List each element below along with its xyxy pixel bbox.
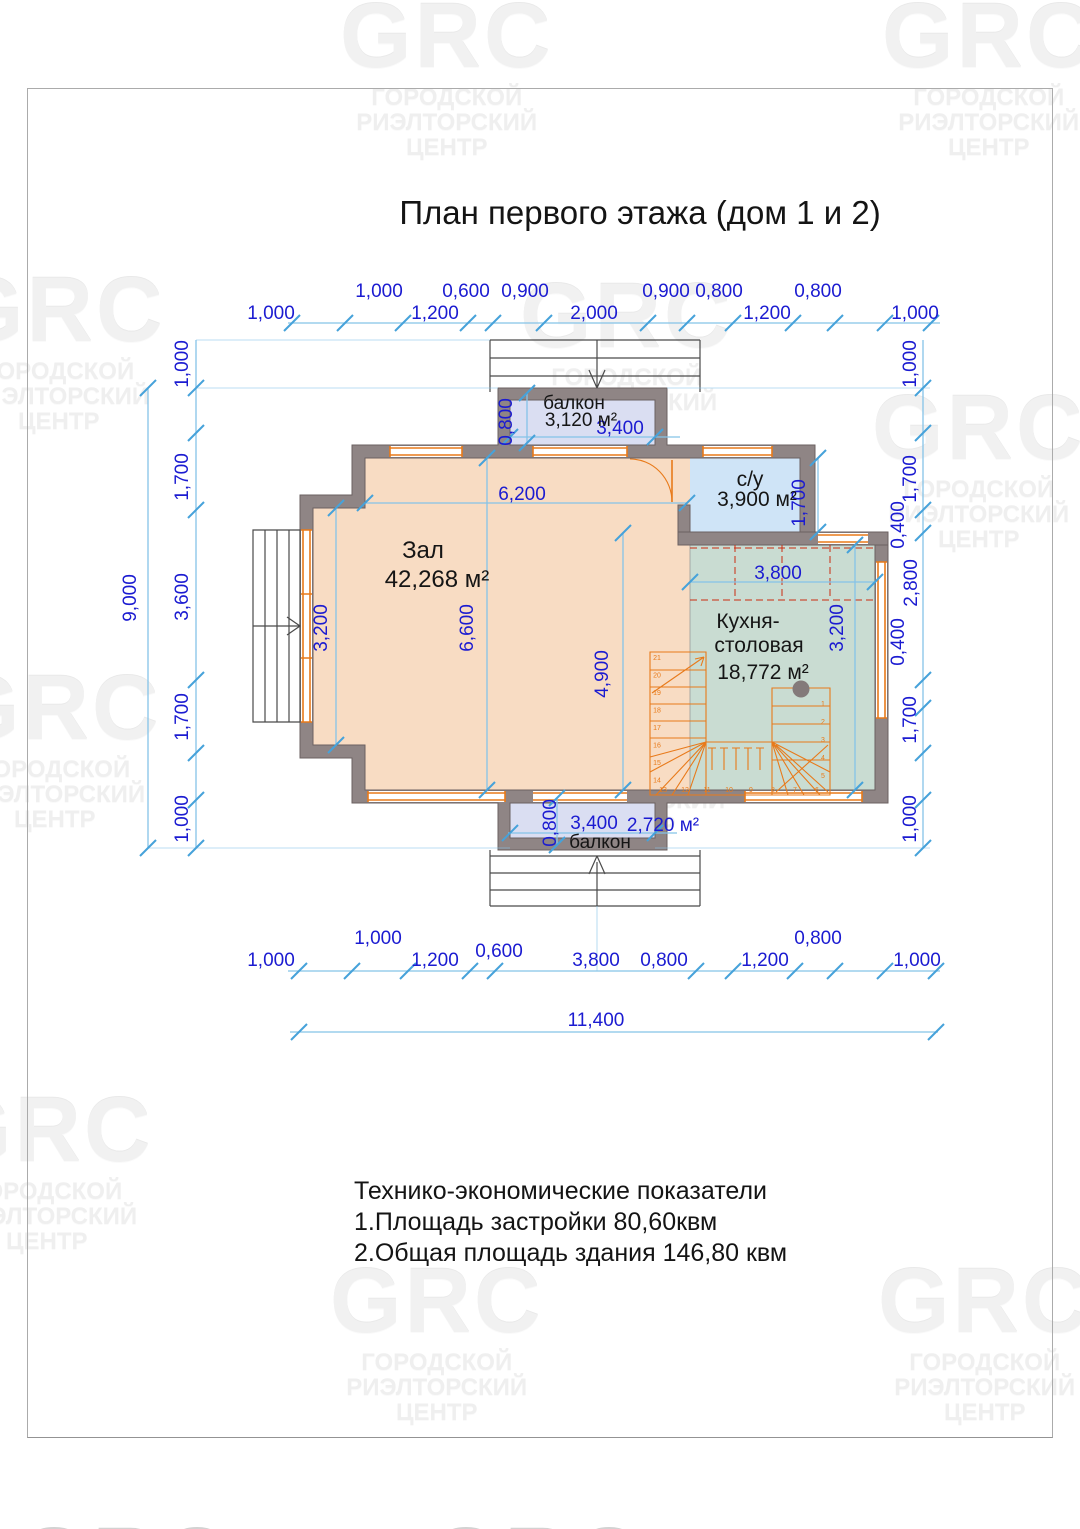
dim-label: 1,700: [900, 696, 921, 744]
dim-label: 1,000: [247, 303, 295, 324]
dim-label: 0,600: [475, 941, 523, 962]
dim-label: 0,400: [888, 618, 909, 666]
dim-label: 0,800: [540, 799, 561, 847]
label: 10: [725, 787, 733, 794]
dim-label: 0,800: [640, 950, 688, 971]
label: 13: [659, 787, 667, 794]
dim-label: 9,000: [120, 574, 141, 622]
dim-label: 4,900: [592, 650, 613, 698]
dim-label: 1,200: [743, 303, 791, 324]
label: 3,120 м²: [545, 410, 617, 431]
dim-label: 6,200: [498, 484, 546, 505]
label: 18,772 м²: [717, 661, 809, 684]
drawing-page: GRCГОРОДСКОЙРИЭЛТОРСКИЙЦЕНТРGRCГОРОДСКОЙ…: [0, 0, 1080, 1529]
dim-label: 0,900: [642, 281, 690, 302]
label: 4: [821, 755, 825, 762]
dim-label: 3,600: [172, 573, 193, 621]
dim-label: 6,600: [457, 604, 478, 652]
dim-label: 2,800: [901, 559, 922, 607]
dim-label: 2,000: [570, 303, 618, 324]
label: 14: [653, 778, 661, 785]
steps-top: [490, 340, 700, 392]
label: 2: [821, 719, 825, 726]
dim-label: 3,200: [827, 604, 848, 652]
dim-label: 1,700: [172, 453, 193, 501]
technical-notes: Технико-экономические показатели 1.Площа…: [354, 1176, 787, 1269]
dim-label: 1,000: [900, 340, 921, 388]
dim-label: 2,720 м²: [627, 815, 699, 836]
label: 18: [653, 708, 661, 715]
porch-left: [253, 530, 300, 722]
label: столовая: [714, 634, 803, 657]
dim-label: 3,200: [311, 604, 332, 652]
window: [745, 791, 862, 802]
window: [703, 446, 772, 457]
label: 15: [653, 760, 661, 767]
dim-label: 1,000: [247, 950, 295, 971]
window: [876, 562, 887, 718]
window: [533, 446, 627, 457]
window: [390, 446, 462, 457]
label: 3,900 м²: [717, 488, 797, 511]
dim-label: 1,000: [172, 795, 193, 843]
dim-label: 3,800: [572, 950, 620, 971]
label: 11: [703, 787, 710, 794]
dim-label: 1,200: [741, 950, 789, 971]
dim-label: 3,400: [570, 813, 618, 834]
label: 12: [681, 787, 689, 794]
label: 9: [749, 787, 753, 794]
dim-label: 1,200: [411, 950, 459, 971]
label: 19: [653, 690, 661, 697]
label: 16: [653, 743, 661, 750]
steps-bottom: [490, 850, 700, 906]
notes-line-1: 1.Площадь застройки 80,60квм: [354, 1207, 787, 1238]
label: 3: [821, 737, 825, 744]
label: 20: [653, 673, 661, 680]
dim-label: 1,000: [893, 950, 941, 971]
dim-label: 0,600: [442, 281, 490, 302]
label: Кухня-: [716, 610, 779, 633]
notes-line-2: 2.Общая площадь здания 146,80 квм: [354, 1238, 787, 1269]
label: 21: [653, 655, 661, 662]
dim-label: 11,400: [568, 1010, 625, 1031]
hall-fill: [313, 458, 690, 790]
dim-label: 1,000: [172, 340, 193, 388]
dim-label: 0,900: [501, 281, 549, 302]
plan-title: План первого этажа (дом 1 и 2): [320, 194, 960, 232]
dim-label: 0,800: [794, 928, 842, 949]
label: 42,268 м²: [385, 566, 490, 593]
dim-label: 3,800: [754, 563, 802, 584]
dim-label: 1,000: [355, 281, 403, 302]
label: 5: [821, 773, 825, 780]
dim-label: 1,000: [891, 303, 939, 324]
dim-label: 1,000: [900, 795, 921, 843]
label: 8: [771, 787, 775, 794]
dim-label: 0,800: [695, 281, 743, 302]
label: 1: [821, 701, 825, 708]
dim-label: 1,200: [411, 303, 459, 324]
dim-label: 1,700: [900, 455, 921, 503]
label: Зал: [402, 537, 444, 564]
dim-label: 0,800: [794, 281, 842, 302]
notes-heading: Технико-экономические показатели: [354, 1176, 787, 1207]
label: 6: [815, 787, 819, 794]
dim-label: 0,800: [496, 398, 517, 446]
dim-label: 1,700: [172, 693, 193, 741]
label: балкон: [569, 832, 631, 853]
label: 7: [793, 787, 797, 794]
dim-label: 0,400: [888, 501, 909, 549]
label: 17: [653, 725, 661, 732]
dim-label: 1,000: [354, 928, 402, 949]
